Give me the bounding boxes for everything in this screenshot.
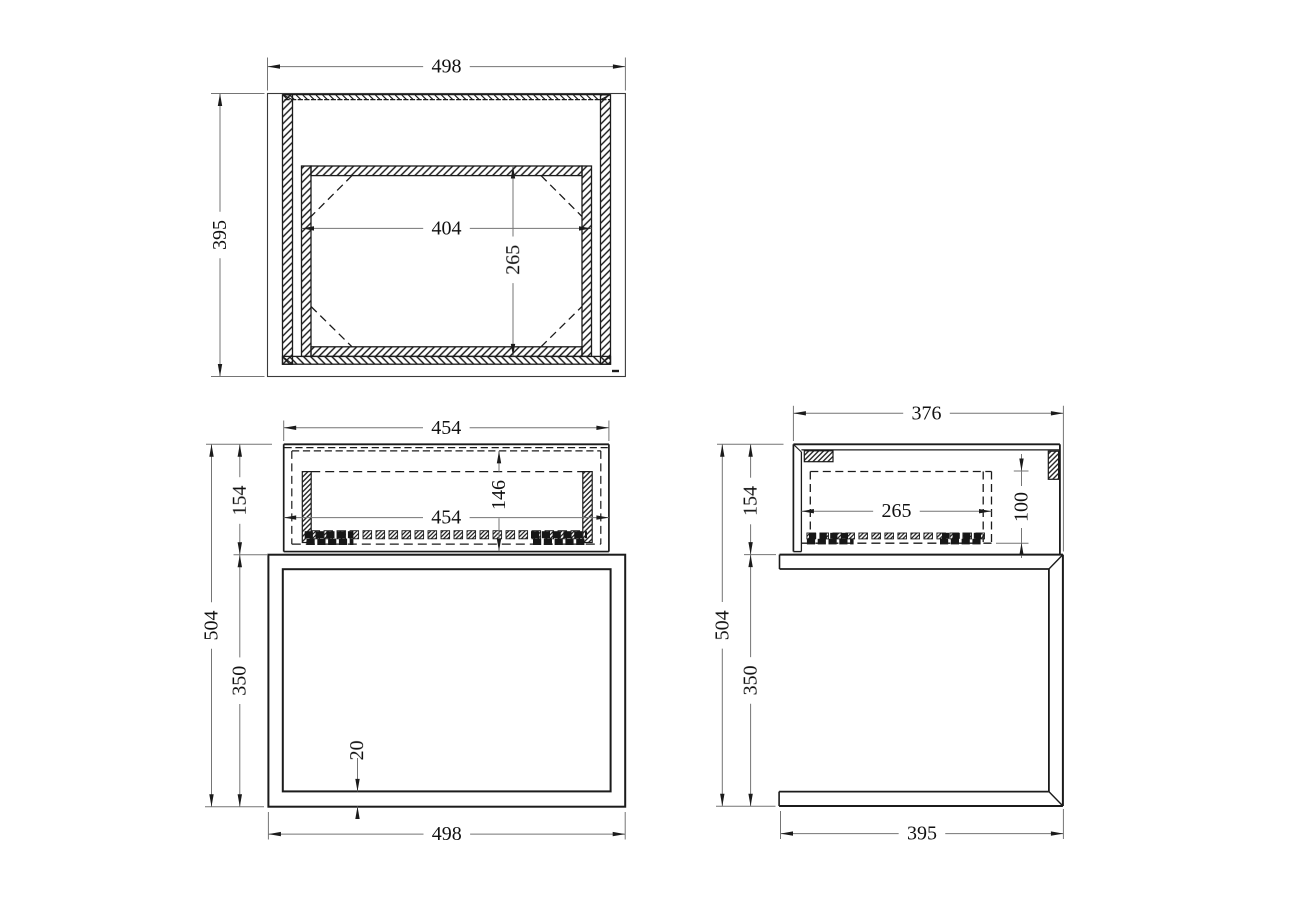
svg-text:504: 504 [711,610,733,640]
svg-text:404: 404 [432,217,462,239]
svg-text:454: 454 [431,417,461,439]
svg-text:376: 376 [912,402,942,424]
svg-text:100: 100 [1011,492,1033,522]
svg-text:350: 350 [229,666,251,696]
svg-text:498: 498 [432,823,462,845]
svg-text:154: 154 [740,486,762,516]
svg-text:395: 395 [907,823,937,845]
svg-text:154: 154 [229,486,251,516]
svg-text:265: 265 [502,245,524,275]
svg-text:350: 350 [740,665,762,695]
svg-text:265: 265 [881,500,911,522]
svg-text:146: 146 [488,480,510,510]
svg-text:498: 498 [431,56,461,78]
svg-text:504: 504 [201,611,223,641]
svg-text:454: 454 [431,507,461,529]
svg-text:395: 395 [209,220,231,250]
svg-text:20: 20 [346,740,368,760]
